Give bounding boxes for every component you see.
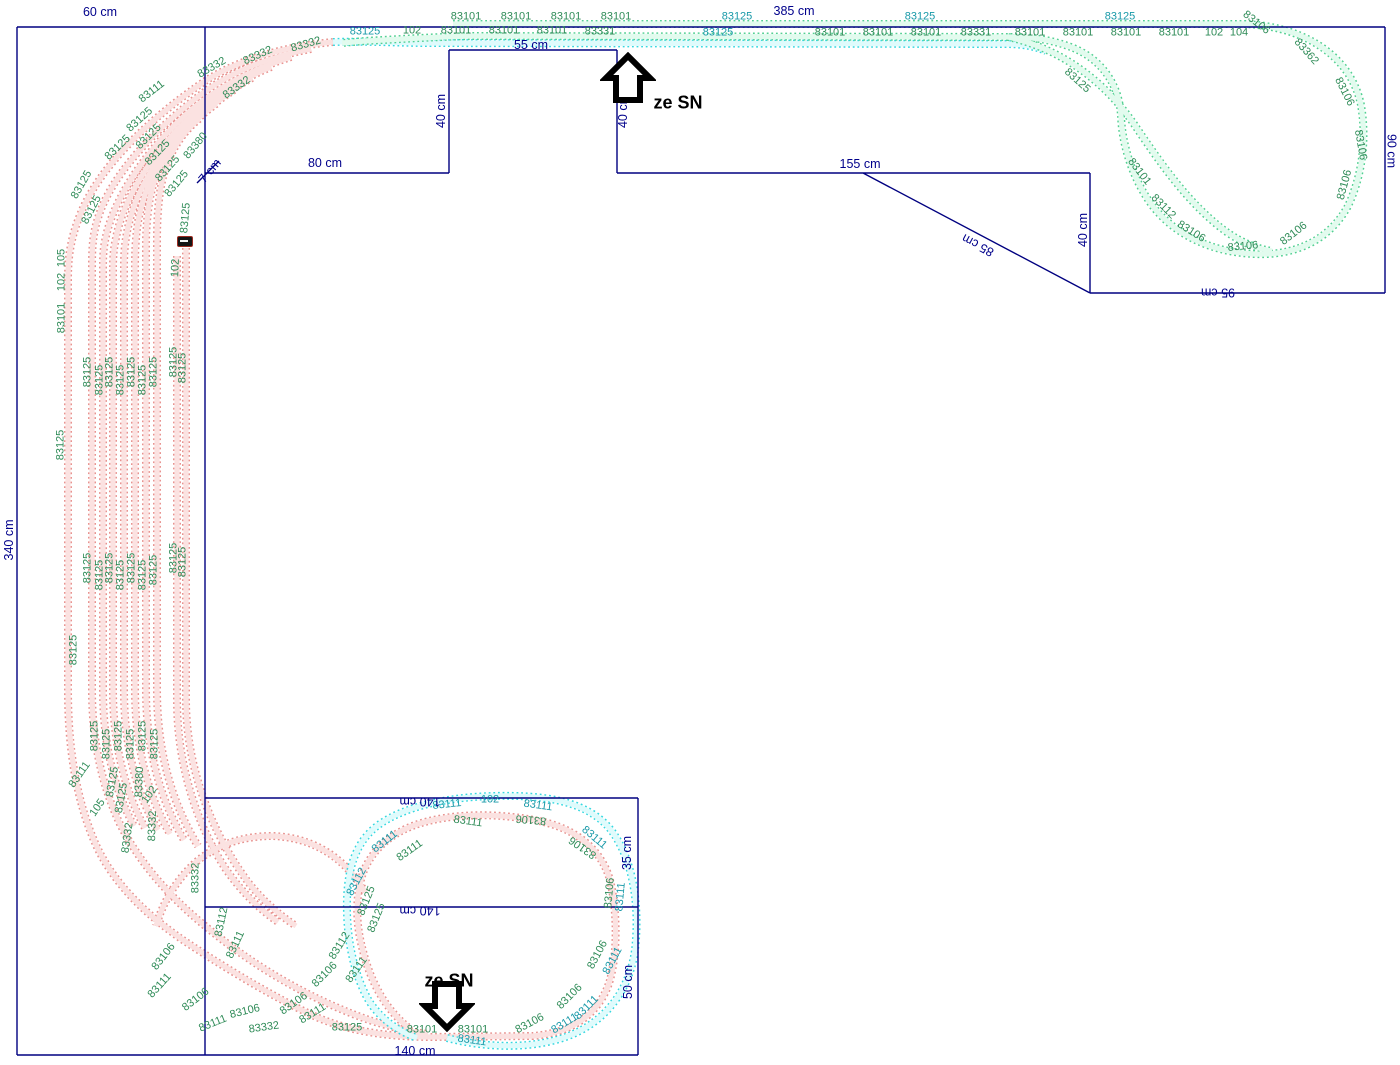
ze-sn-label-top: ze SN: [653, 93, 702, 114]
track-plan-drawing: [0, 0, 1400, 1065]
locomotive-icon[interactable]: [177, 236, 193, 247]
green-tracks[interactable]: [342, 24, 1363, 254]
track-plan-canvas: 8310183101831018310183125831258312583125…: [0, 0, 1400, 1065]
pink-yard-tracks[interactable]: [68, 42, 616, 1037]
cyan-tracks[interactable]: [333, 42, 1046, 1046]
ze-sn-label-bottom: ze SN: [424, 971, 473, 992]
ze-sn-arrow-up[interactable]: [600, 52, 656, 109]
